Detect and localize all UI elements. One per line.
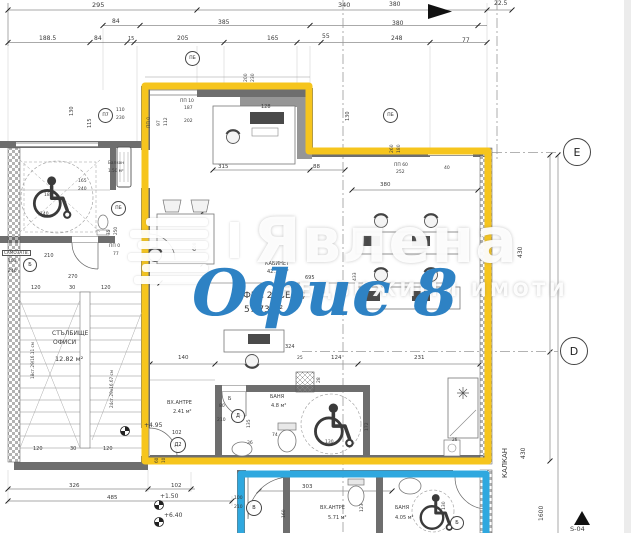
circle-marker: ПБ (383, 108, 398, 123)
circle-marker: Д (231, 409, 245, 423)
circle-marker: ПБ (185, 51, 200, 66)
circle-marker: D (560, 337, 588, 365)
circle-marker: В (246, 500, 262, 516)
listing-title: Офис 8 (192, 262, 458, 326)
circle-marker: П7 (98, 108, 113, 123)
image-edge (624, 0, 631, 533)
floorplan-screenshot: 29534038022.584385380188.584152051655524… (0, 0, 631, 533)
circle-marker: Е (563, 138, 591, 166)
circle-marker: Б (23, 258, 37, 272)
circle-marker: ПБ (111, 201, 126, 216)
circle-marker: Д2 (170, 437, 186, 453)
circle-marker: Б (450, 516, 464, 530)
